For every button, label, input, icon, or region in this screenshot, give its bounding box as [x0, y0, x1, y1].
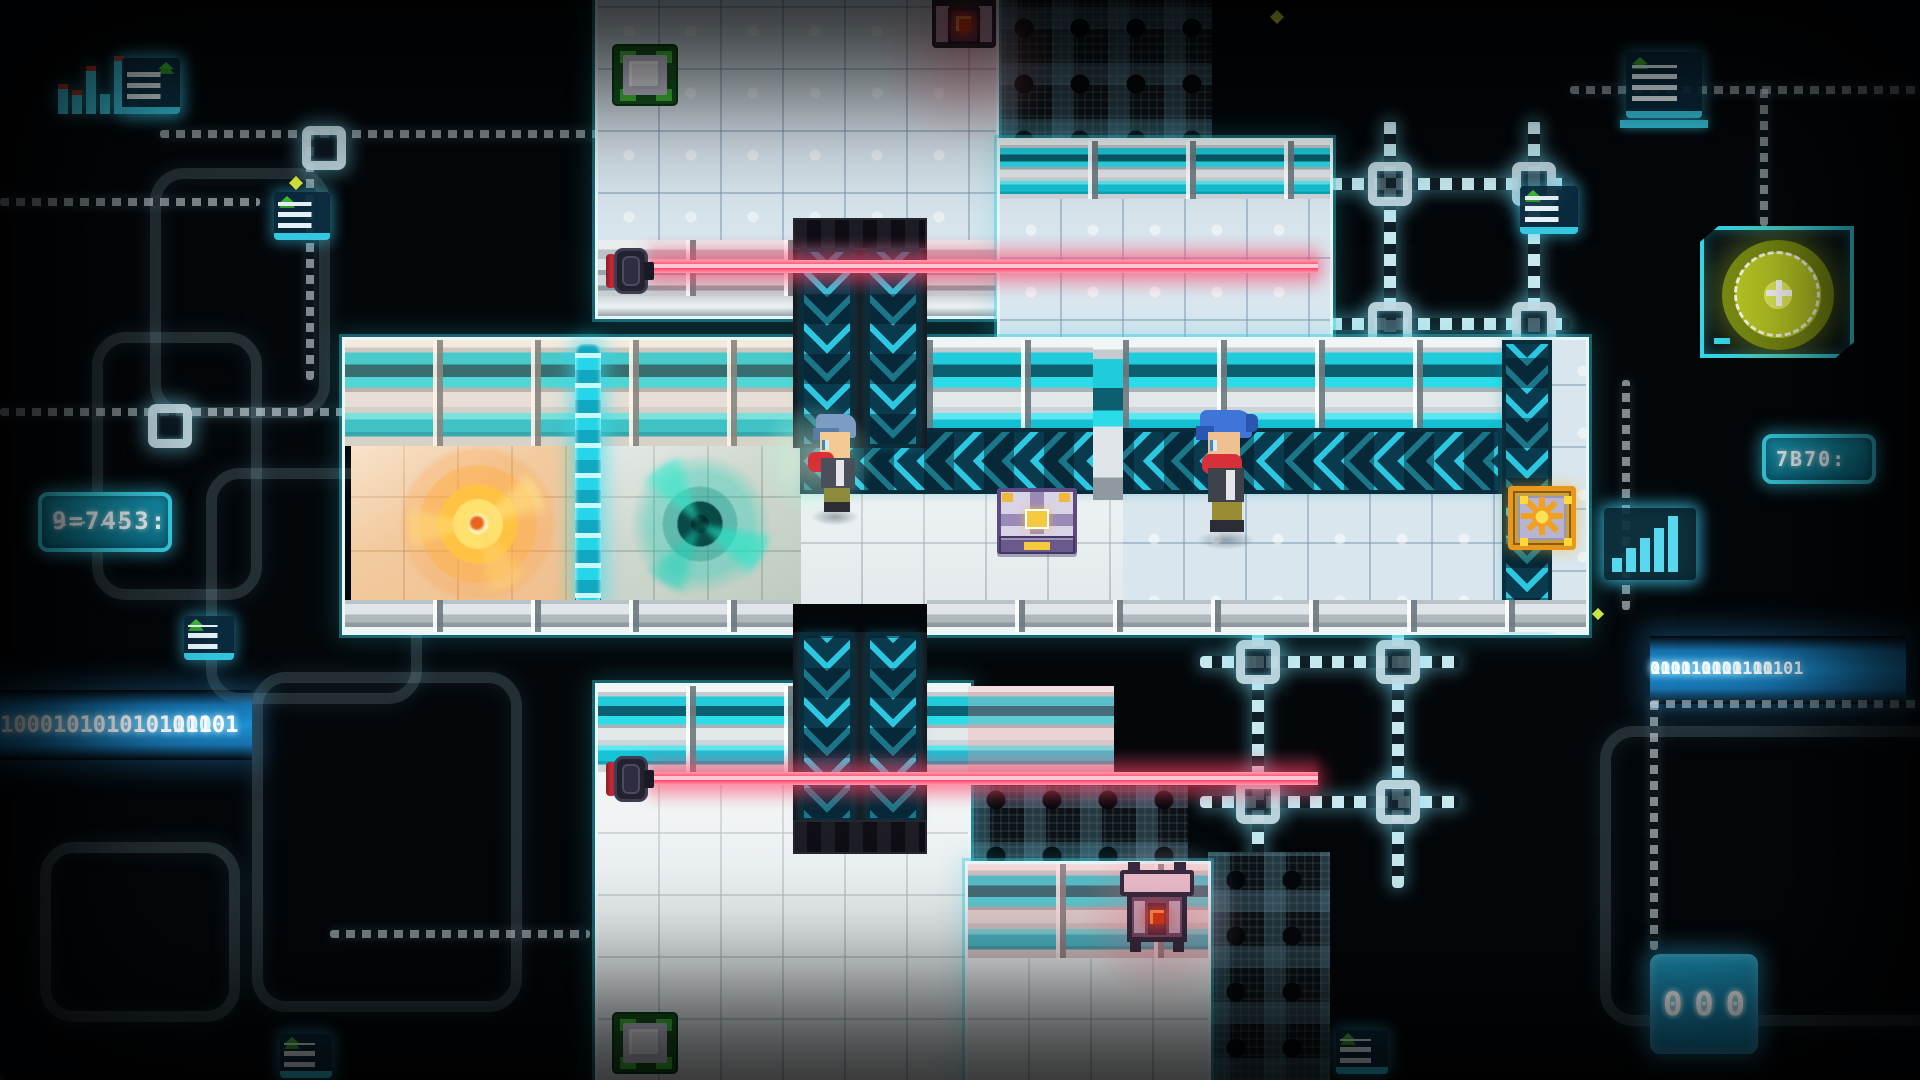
circuit-trace — [1570, 86, 1920, 94]
character-right[interactable] — [1194, 410, 1258, 556]
lcd-display-right: 7B70: — [1762, 434, 1876, 484]
device-foot — [1130, 942, 1141, 952]
lcd-left-row2: -..-...-. — [52, 516, 135, 529]
wall-pillars — [927, 600, 1586, 632]
sun-corner-dots — [1520, 496, 1528, 504]
bar-chart-icon — [58, 54, 180, 120]
sun-tile[interactable] — [1508, 486, 1576, 550]
room-middle-band — [345, 340, 1586, 632]
document-icon — [1336, 1030, 1388, 1074]
boots — [824, 502, 850, 512]
power-core-chest[interactable] — [997, 488, 1077, 554]
security-device-bottom[interactable] — [1120, 862, 1194, 948]
circuit-node — [1376, 780, 1420, 824]
binary-row: 100010101010101101 — [0, 713, 238, 738]
eye — [822, 440, 829, 450]
document-stand — [1620, 120, 1708, 128]
game-screen[interactable]: 9=7453: -..-...-. 100010101010110001 100… — [0, 0, 1920, 1080]
laser-emitter-top[interactable] — [606, 242, 654, 300]
circuit-trace — [1760, 86, 1768, 226]
device-red-core — [1150, 910, 1164, 924]
chest-drawer-gold — [1024, 542, 1050, 550]
lcd-display-left: 9=7453: -..-...-. — [38, 492, 172, 552]
plate-inner — [629, 61, 661, 89]
device-leg — [1134, 901, 1145, 933]
circuit-node — [148, 404, 192, 448]
wall-warm-tint — [345, 340, 795, 446]
pants — [1212, 502, 1242, 522]
emitter-inner — [622, 256, 640, 286]
memory-chip-icon: 000 000 — [1650, 954, 1758, 1054]
circuit-loop — [1600, 726, 1920, 1026]
document-icon — [1520, 186, 1578, 234]
south-wall — [345, 600, 793, 632]
laser-emitter-bottom[interactable] — [606, 750, 654, 808]
ram-row: 000 — [1651, 985, 1757, 1023]
room-bottom-right — [968, 864, 1208, 1080]
plate-inner — [629, 1029, 661, 1057]
sun-core — [1532, 507, 1552, 527]
circuit-trace — [160, 130, 610, 138]
device-red-core — [956, 16, 971, 31]
beam-highlight — [650, 264, 1318, 268]
document-icon — [1626, 52, 1702, 118]
bar-chart-icon-right — [1604, 508, 1696, 580]
portal-orange-core — [470, 516, 484, 530]
device-pillar — [979, 6, 992, 42]
binary-row: 010110101 — [1650, 660, 1742, 680]
document-icon — [184, 616, 234, 660]
pressure-plate-bottom[interactable] — [612, 1012, 678, 1074]
virus-scan-icon — [1700, 226, 1854, 358]
lcd-right-value: 7B70: — [1776, 449, 1846, 470]
hair-spike — [1246, 414, 1258, 432]
security-device-top[interactable] — [932, 0, 996, 48]
document-icon — [280, 1034, 332, 1078]
wall-pillars — [1000, 141, 1330, 199]
binary-readout-right: 010111010101101 1010110101101 010110101 — [1650, 636, 1906, 704]
eye — [1210, 440, 1217, 451]
circuit-trace — [1650, 700, 1658, 950]
emitter-muzzle — [644, 262, 654, 280]
emitter-muzzle — [644, 770, 654, 788]
laser-beam-bottom — [650, 764, 1318, 794]
chest-corners — [1002, 493, 1013, 502]
character-shadow — [1196, 530, 1256, 550]
diamond-fence — [575, 344, 601, 604]
circuit-loop — [40, 842, 240, 1022]
binary-readout-left: 100010101010110001 100010101010101101 — [0, 690, 252, 760]
wall-column — [1093, 340, 1123, 500]
document-icon — [274, 192, 330, 240]
circuit-node — [302, 126, 346, 170]
virus-tab — [1714, 338, 1730, 344]
circuit-node — [1236, 640, 1280, 684]
boots — [1210, 520, 1244, 532]
circuit-loop — [252, 672, 522, 1012]
character-left[interactable] — [808, 414, 864, 526]
beam-highlight — [650, 776, 1318, 780]
device-leg — [1169, 901, 1180, 933]
pressure-plate-top[interactable] — [612, 44, 678, 106]
device-body — [1127, 892, 1187, 942]
circuit-node — [1368, 162, 1412, 206]
wall-band — [1000, 141, 1330, 199]
device-foot — [1173, 942, 1184, 952]
wall-pillars — [345, 600, 793, 632]
shirt-stripe — [836, 460, 844, 486]
chest-drawer — [999, 536, 1075, 554]
circuit-trace — [330, 930, 590, 938]
circuit-trace — [0, 198, 260, 206]
emitter-inner — [622, 764, 640, 794]
shirt-stripe — [1226, 470, 1235, 500]
chest-gold-core — [1025, 509, 1049, 529]
circuit-node — [1376, 640, 1420, 684]
laser-beam-top — [650, 252, 1318, 282]
conveyor-column-bottom — [793, 632, 927, 854]
door-frame — [793, 820, 927, 854]
south-wall — [927, 600, 1586, 632]
